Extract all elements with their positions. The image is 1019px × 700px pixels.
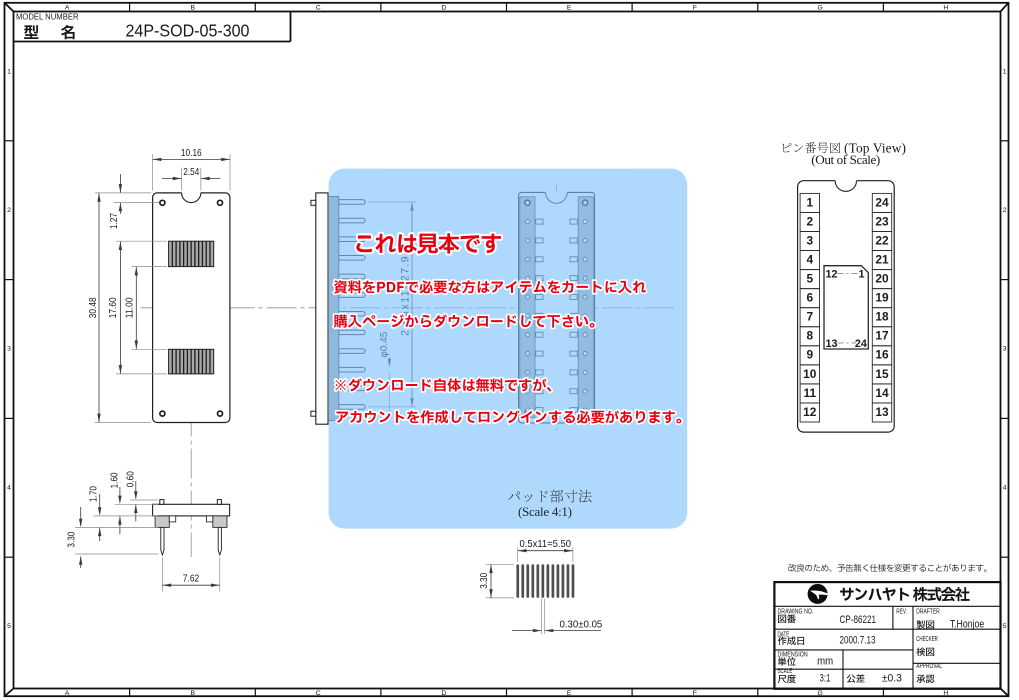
svg-text:23: 23 — [875, 214, 889, 228]
svg-text:0.60: 0.60 — [126, 471, 137, 487]
svg-text:1.27: 1.27 — [109, 213, 120, 229]
svg-text:2: 2 — [1003, 207, 1007, 214]
svg-text:E: E — [567, 690, 572, 697]
svg-text:E: E — [567, 5, 572, 12]
svg-text:10: 10 — [803, 367, 817, 381]
svg-text:G: G — [818, 5, 823, 12]
svg-text:7.62: 7.62 — [183, 574, 200, 585]
svg-text:1: 1 — [7, 68, 11, 75]
svg-text:H: H — [943, 690, 948, 697]
svg-text:3.30: 3.30 — [67, 531, 78, 547]
svg-text:18: 18 — [875, 310, 889, 324]
svg-text:10.16: 10.16 — [181, 148, 202, 159]
svg-text:24: 24 — [875, 195, 889, 209]
svg-text:F: F — [693, 5, 697, 12]
svg-text:5: 5 — [806, 272, 813, 286]
svg-text:MODEL NUMBER: MODEL NUMBER — [16, 12, 79, 22]
svg-text:1.70: 1.70 — [89, 486, 100, 502]
svg-text:mm: mm — [817, 655, 833, 667]
svg-text:17: 17 — [875, 329, 889, 343]
svg-text:7: 7 — [806, 310, 813, 324]
svg-text:3.30: 3.30 — [479, 573, 490, 589]
svg-text:1: 1 — [1003, 68, 1007, 75]
svg-text:0.30±0.05: 0.30±0.05 — [560, 620, 603, 631]
svg-text:3: 3 — [7, 346, 11, 353]
svg-text:DRAFTER: DRAFTER — [916, 606, 940, 615]
svg-text:16: 16 — [875, 348, 889, 362]
svg-text:12: 12 — [826, 268, 838, 280]
svg-text:11.00: 11.00 — [124, 297, 135, 318]
svg-text:3: 3 — [806, 233, 813, 247]
svg-text:21: 21 — [875, 252, 889, 266]
svg-text:D: D — [441, 5, 446, 12]
svg-text:8: 8 — [806, 329, 813, 343]
svg-text:4: 4 — [806, 252, 813, 266]
svg-text:3:1: 3:1 — [820, 672, 831, 684]
svg-text:15: 15 — [875, 367, 889, 381]
svg-text:G: G — [818, 690, 823, 697]
svg-text:SCALE: SCALE — [778, 666, 793, 675]
svg-text:3: 3 — [1003, 346, 1007, 353]
svg-text:H: H — [943, 5, 948, 12]
svg-text:13: 13 — [875, 405, 889, 419]
svg-text:24: 24 — [855, 338, 867, 350]
svg-text:A: A — [65, 690, 70, 697]
svg-text:±0.3: ±0.3 — [882, 672, 902, 684]
svg-text:24P-SOD-05-300: 24P-SOD-05-300 — [126, 21, 250, 41]
svg-text:F: F — [693, 690, 697, 697]
svg-text:12: 12 — [803, 405, 817, 419]
svg-text:4: 4 — [1003, 484, 1007, 491]
svg-text:11: 11 — [804, 386, 817, 400]
svg-text:14: 14 — [875, 386, 889, 400]
svg-text:0.5x11=5.50: 0.5x11=5.50 — [520, 539, 572, 550]
svg-text:1: 1 — [806, 195, 813, 209]
svg-text:D: D — [441, 690, 446, 697]
svg-text:(Out of Scale): (Out of Scale) — [811, 152, 880, 167]
svg-text:C: C — [316, 690, 321, 697]
svg-text:20: 20 — [875, 272, 889, 286]
svg-text:2000.7.13: 2000.7.13 — [840, 634, 876, 646]
svg-text:1: 1 — [858, 268, 864, 280]
svg-text:(Scale 4:1): (Scale 4:1) — [518, 504, 572, 519]
svg-text:B: B — [191, 5, 196, 12]
svg-text:CHECKER: CHECKER — [916, 634, 938, 643]
svg-text:30.48: 30.48 — [88, 297, 99, 318]
svg-text:2: 2 — [7, 207, 11, 214]
svg-text:APPROVAL: APPROVAL — [916, 661, 942, 670]
svg-text:2: 2 — [806, 214, 813, 228]
svg-text:22: 22 — [875, 233, 889, 247]
svg-text:C: C — [316, 5, 321, 12]
svg-text:6: 6 — [806, 291, 813, 305]
svg-text:DRAWING NO.: DRAWING NO. — [778, 606, 814, 615]
svg-text:1.60: 1.60 — [110, 472, 121, 488]
svg-text:T.Honjoe: T.Honjoe — [950, 619, 985, 631]
svg-text:2.54: 2.54 — [183, 167, 199, 178]
svg-text:9: 9 — [806, 348, 813, 362]
svg-text:B: B — [191, 690, 196, 697]
svg-text:DATE: DATE — [778, 630, 790, 639]
svg-text:A: A — [65, 5, 70, 12]
svg-text:13: 13 — [826, 338, 838, 350]
svg-text:19: 19 — [875, 291, 889, 305]
svg-text:17.60: 17.60 — [108, 297, 119, 318]
svg-text:5: 5 — [1003, 623, 1007, 630]
svg-text:CP-86221: CP-86221 — [840, 614, 877, 626]
svg-text:REV.: REV. — [896, 606, 907, 615]
svg-text:4: 4 — [7, 484, 11, 491]
svg-text:5: 5 — [7, 623, 11, 630]
